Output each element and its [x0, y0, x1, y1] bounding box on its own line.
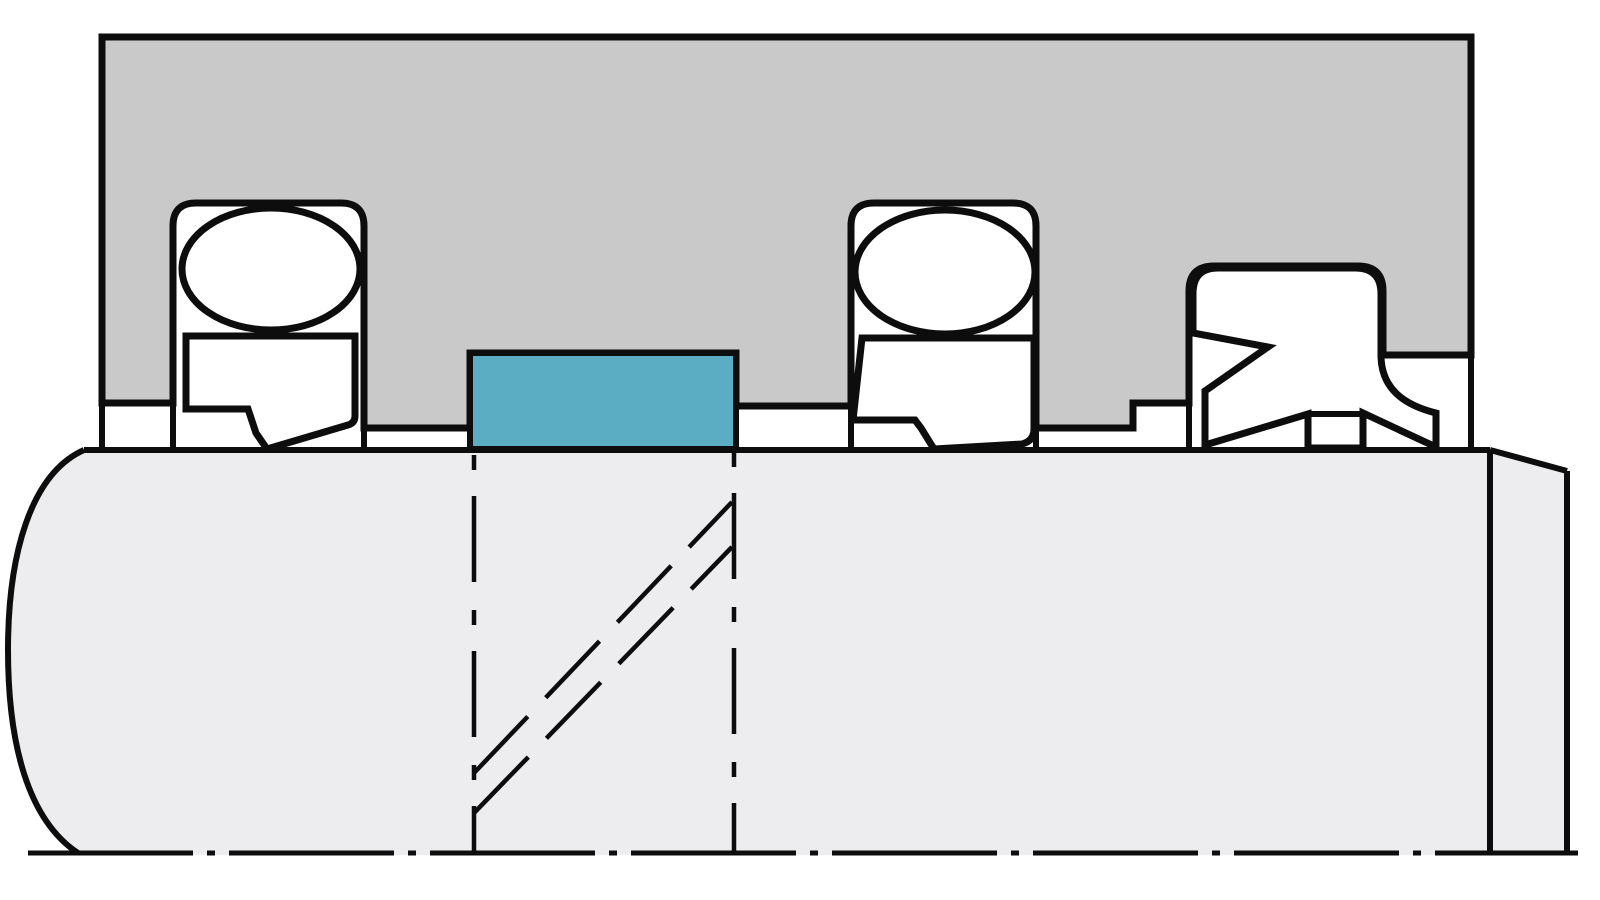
o-ring-energizer-left [182, 208, 360, 330]
o-ring-energizer-middle [855, 210, 1035, 334]
rod-shaft [8, 450, 1567, 855]
guide-ring-highlighted [470, 353, 736, 449]
technical-diagram-canvas [0, 0, 1600, 900]
seal-cross-section-diagram [0, 0, 1600, 900]
